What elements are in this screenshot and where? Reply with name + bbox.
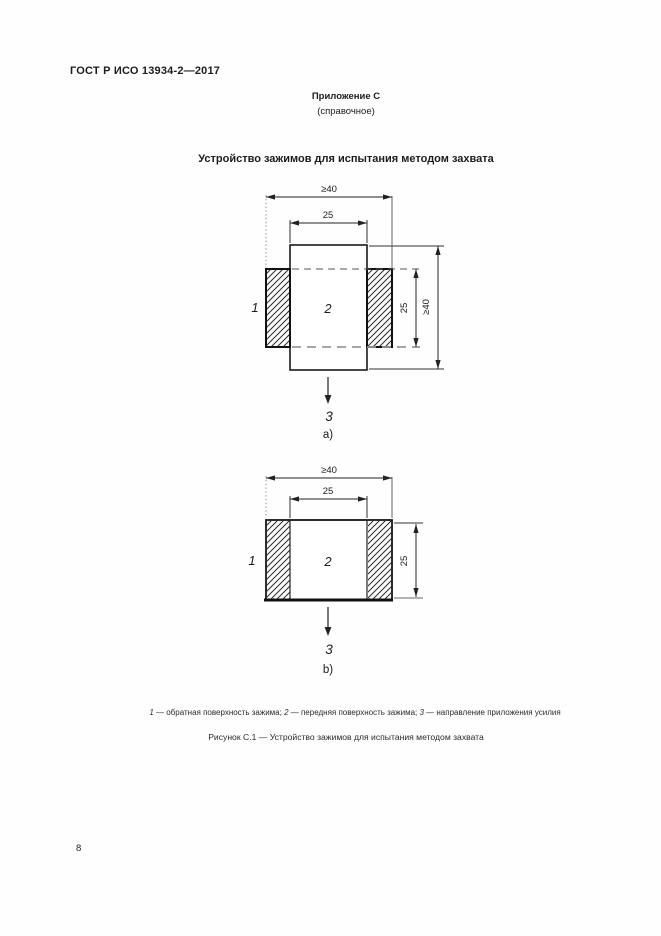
dim-width-inner-a: 25	[290, 210, 367, 226]
dim-label: 25	[323, 210, 334, 221]
page-number: 8	[76, 843, 81, 854]
sublabel-a: a)	[323, 429, 333, 441]
label-force: 3	[325, 642, 333, 657]
force-arrow-b	[325, 607, 332, 636]
dim-width-outer-b: ≥40	[266, 465, 392, 481]
dim-width-inner-b: 25	[290, 486, 367, 502]
figure-caption: Рисунок С.1 — Устройство зажимов для исп…	[31, 732, 661, 742]
back-clamp-right	[368, 521, 391, 599]
back-clamp-right	[367, 269, 392, 347]
document-page: ГОСТ Р ИСО 13934-2—2017 Приложение С (сп…	[0, 0, 661, 936]
label-front-clamp: 2	[323, 301, 332, 316]
force-arrow-a	[325, 377, 332, 404]
dim-height-b: 25	[399, 524, 419, 597]
dim-width-outer-a: ≥40	[266, 184, 392, 200]
back-clamp-left	[266, 269, 290, 347]
label-back-clamp: 1	[251, 300, 258, 315]
dim-label: 25	[323, 486, 334, 497]
back-clamp-left	[267, 521, 290, 599]
dim-label: ≥40	[321, 465, 337, 476]
sublabel-b: b)	[323, 664, 333, 676]
label-front-clamp: 2	[323, 554, 332, 569]
dim-height-inner-a: 25	[399, 269, 419, 347]
legend-text-1: — обратная поверхность зажима;	[154, 708, 284, 717]
label-force: 3	[325, 409, 333, 424]
legend-text-3: — направление приложения усилия	[424, 708, 561, 717]
technical-drawing: ≥40 25 25	[0, 0, 661, 936]
label-back-clamp: 1	[248, 553, 255, 568]
dim-label: ≥40	[421, 299, 432, 315]
dim-label: 25	[399, 556, 410, 567]
legend-text-2: — передняя поверхность зажима;	[289, 708, 420, 717]
dim-label: 25	[399, 303, 410, 314]
dim-height-outer-a: ≥40	[421, 246, 441, 369]
dim-label: ≥40	[321, 184, 337, 195]
figure-legend: 1 — обратная поверхность зажима; 2 — пер…	[40, 708, 661, 717]
drawing-b: ≥40 25 25	[248, 465, 423, 676]
drawing-a: ≥40 25 25	[251, 184, 444, 441]
